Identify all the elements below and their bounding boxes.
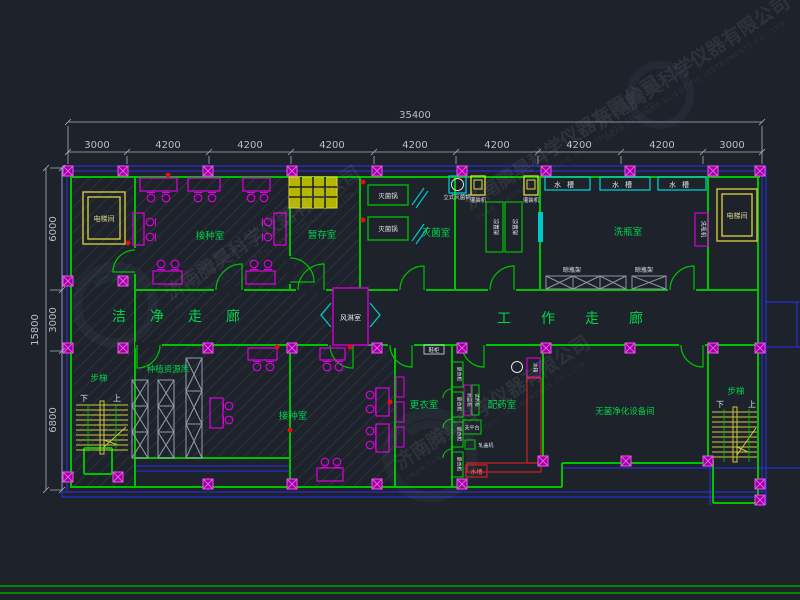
wardrobe4-label: 更衣柜 xyxy=(456,456,463,471)
sterilization-label: 灭菌室 xyxy=(422,227,451,239)
dim-top-8: 3000 xyxy=(719,140,744,151)
stairs-right-up-label: 上 xyxy=(748,400,756,409)
work-corridor-label: 工作走廊 xyxy=(497,310,673,327)
dim-left-1: 3000 xyxy=(48,307,59,332)
sterilizer-pot2-label: 灭菌锅 xyxy=(378,224,398,233)
stairs-left-up-label: 上 xyxy=(113,394,121,403)
dim-left-2: 6800 xyxy=(48,407,59,432)
sink1-label: 水槽 xyxy=(554,180,580,189)
air-shower-label: 风淋室 xyxy=(340,313,361,322)
cooling-rack2-label: 凉置架 xyxy=(511,219,519,236)
sink3-label: 水槽 xyxy=(669,180,695,189)
filling-machine2-label: 灌装机 xyxy=(523,196,540,204)
bottle-washer-label: 洗瓶机 xyxy=(700,221,708,238)
sterile-equipment-label: 无菌净化设备间 xyxy=(595,406,655,417)
inoculation-bottom-label: 接种室 xyxy=(279,410,308,422)
bottle-wash-label: 洗瓶室 xyxy=(614,226,643,238)
stairs-right-down-label: 下 xyxy=(716,400,724,409)
floorplan-drawing: 电梯间 电梯间 接种室 暂存室 灭菌锅 灭菌锅 灭菌室 立式灭菌锅 xyxy=(0,0,800,600)
dim-top-5: 4200 xyxy=(484,140,509,151)
wardrobe1-label: 更衣柜 xyxy=(456,366,463,381)
dim-top-2: 4200 xyxy=(237,140,262,151)
stairs-left-label: 步梯 xyxy=(90,373,108,384)
sterilizer-pot1-label: 灭菌锅 xyxy=(378,191,398,200)
dim-top-4: 4200 xyxy=(402,140,427,151)
stairs-right-label: 步梯 xyxy=(727,386,745,397)
clean-corridor-label: 洁净走廊 xyxy=(112,308,264,325)
dim-total-width: 35400 xyxy=(399,110,431,121)
stairs-left-down-label: 下 xyxy=(80,394,88,403)
sink2-label: 水槽 xyxy=(612,180,638,189)
drying-rack2-label: 晾瓶架 xyxy=(635,266,653,274)
pass-through-window xyxy=(538,212,543,242)
drying-rack1-label: 晾瓶架 xyxy=(563,266,581,274)
dim-top-3: 4200 xyxy=(319,140,344,151)
elevator-left-label: 电梯间 xyxy=(94,214,115,223)
dim-top-7: 4200 xyxy=(649,140,674,151)
dim-top-0: 3000 xyxy=(84,140,109,151)
resource-library-label: 种植资源库 xyxy=(147,364,190,375)
inoculation-top-label: 接种室 xyxy=(196,230,225,242)
dim-left-0: 6000 xyxy=(48,216,59,241)
capper-label: 轧盖机 xyxy=(478,442,493,449)
dim-total-height: 15800 xyxy=(30,314,41,346)
shoe-cabinet-label: 鞋柜 xyxy=(428,346,440,354)
dim-top-1: 4200 xyxy=(155,140,180,151)
cooling-rack1-label: 凉置架 xyxy=(492,219,500,236)
elevator-right-label: 电梯间 xyxy=(727,211,748,220)
temp-storage-label: 暂存室 xyxy=(308,229,337,241)
cad-floorplan-viewport: 电梯间 电梯间 接种室 暂存室 灭菌锅 灭菌锅 灭菌室 立式灭菌锅 xyxy=(0,0,800,600)
